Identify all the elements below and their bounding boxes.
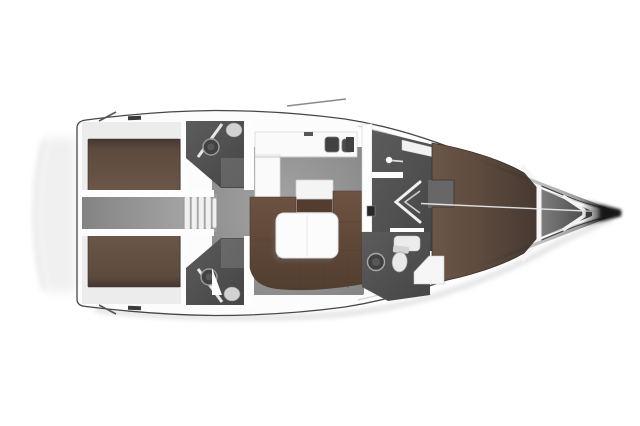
door-pivot — [386, 157, 392, 163]
floorplan-svg — [0, 0, 640, 426]
panel-box — [367, 206, 375, 216]
saloon-table — [273, 213, 338, 262]
companionway-steps — [183, 194, 217, 232]
berth-port — [88, 139, 180, 191]
shower-tray — [221, 158, 245, 187]
faucet — [304, 132, 313, 136]
shower-tray — [221, 239, 245, 268]
deck-cleat-starboard — [128, 306, 141, 310]
galley-sink — [325, 137, 339, 152]
step — [206, 196, 212, 230]
engine-passage — [82, 197, 184, 229]
berth-starboard — [88, 235, 180, 287]
wall — [82, 190, 214, 197]
aft-cabin-port — [82, 122, 187, 196]
wall-stub — [372, 172, 403, 178]
toilet — [226, 123, 242, 137]
step — [185, 196, 191, 230]
toilet — [224, 287, 240, 301]
traveler-line — [287, 99, 346, 106]
wall — [82, 229, 214, 236]
sink-drain — [372, 258, 380, 266]
step — [192, 196, 198, 230]
nav-table-base — [297, 198, 332, 212]
door-line — [392, 161, 403, 162]
sink-drain — [208, 144, 215, 151]
deck-cleat-port — [128, 116, 141, 120]
step — [199, 196, 205, 230]
galley-counter-leg — [255, 155, 280, 203]
aft-cabin-starboard — [82, 230, 187, 304]
stove — [346, 137, 354, 152]
step — [213, 198, 217, 228]
nav-table-top — [296, 180, 333, 199]
sink-drain — [206, 274, 213, 281]
wall — [244, 118, 254, 190]
stern-platform-shadow — [35, 138, 76, 292]
yacht-floorplan-image — [0, 0, 640, 426]
nav-station — [296, 180, 333, 212]
platform-fill — [37, 138, 77, 292]
